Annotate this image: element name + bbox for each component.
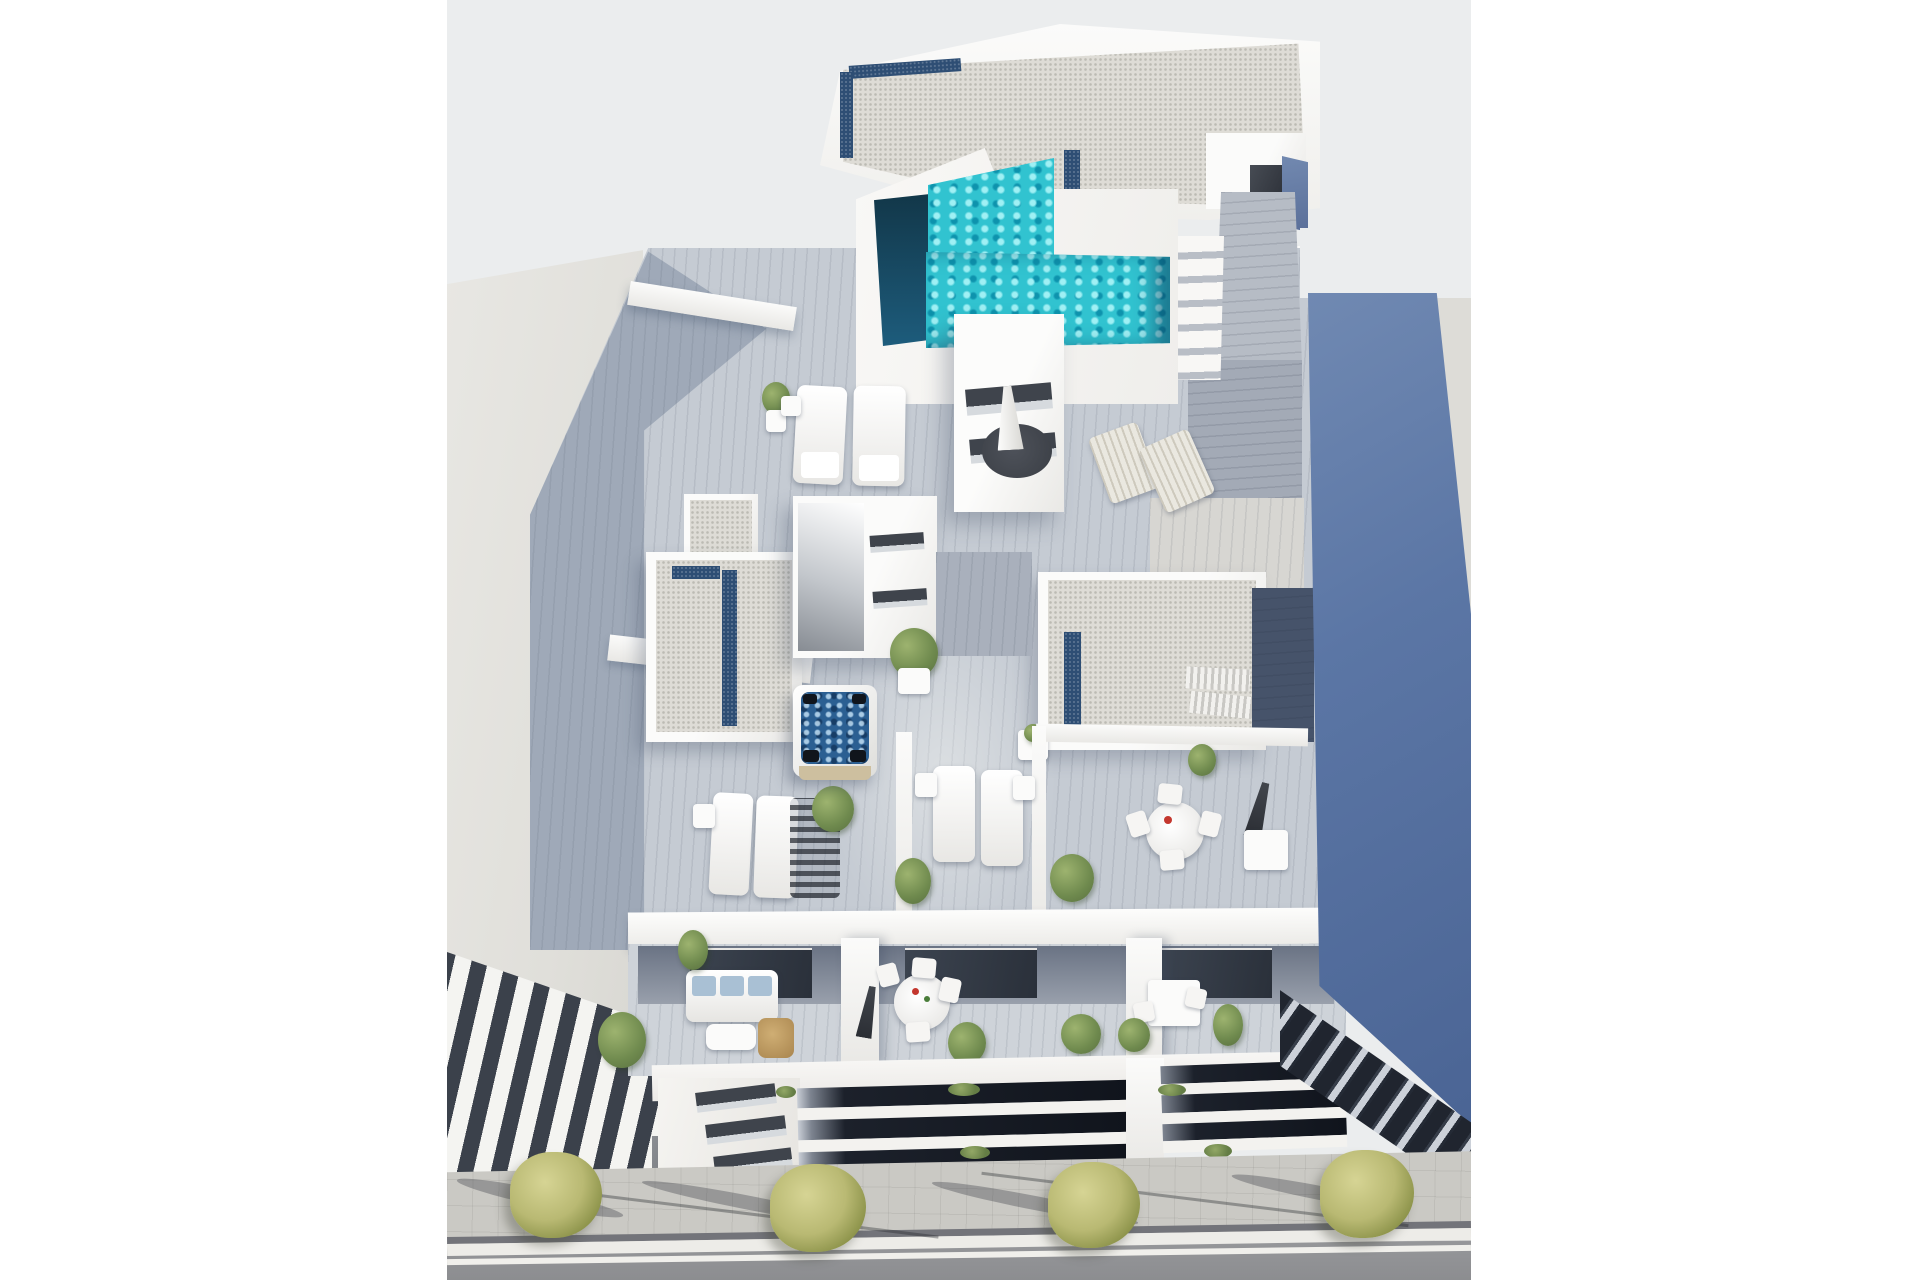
stair-core-mirror-face <box>798 503 864 651</box>
right-skylight-strip <box>1064 632 1081 730</box>
left-skylight-strip-1 <box>672 566 720 579</box>
backdrop-patch-right <box>1300 228 1475 298</box>
terrace-plant-2 <box>895 858 931 904</box>
sofa-cushion-3 <box>748 976 772 996</box>
architectural-render-scene <box>0 0 1920 1280</box>
sun-lounger-2-cushion <box>859 455 899 481</box>
page-margin-left <box>0 0 447 1280</box>
dining-chair-8 <box>905 1021 930 1043</box>
balcony-plant-5 <box>1118 1018 1150 1052</box>
facade-shrub-5 <box>1204 1144 1232 1158</box>
sofa-cushion-2 <box>720 976 744 996</box>
sofa-cushion-1 <box>692 976 716 996</box>
facade-shrub-3 <box>776 1086 796 1098</box>
square-table-chair-2 <box>1184 986 1208 1010</box>
roof-louver-panel-1 <box>1185 666 1250 691</box>
terrace-plant-1 <box>812 786 854 832</box>
balcony-plant-4 <box>1061 1014 1101 1054</box>
side-table-1 <box>781 396 801 416</box>
left-skylight-strip-2 <box>722 570 737 726</box>
table-decor-red <box>1164 816 1172 824</box>
terrace-plant-4 <box>1188 744 1216 776</box>
side-table-4 <box>915 773 937 797</box>
balcony-plant-2 <box>678 930 708 970</box>
sun-lounger-3 <box>708 792 753 896</box>
jacuzzi-wood-skirt <box>799 766 871 780</box>
page-margin-right <box>1471 0 1920 1280</box>
sun-lounger-1-cushion <box>801 452 839 478</box>
facade-shrub-1 <box>948 1083 980 1096</box>
terrace-plant-3 <box>1050 854 1094 902</box>
upper-walkway <box>1214 192 1302 364</box>
wicker-chair <box>758 1018 794 1058</box>
table2-decor-red <box>912 988 919 995</box>
skylight-strip-top-vertical <box>840 72 853 158</box>
jacuzzi-corner-pad-4 <box>850 750 866 762</box>
jacuzzi-corner-pad-1 <box>803 694 817 704</box>
left-gravel-roof-upper <box>690 500 752 552</box>
hallway-deck <box>936 552 1032 656</box>
dining-chair-4 <box>1159 849 1185 871</box>
facade-shrub-4 <box>1158 1084 1186 1096</box>
table2-decor-green <box>924 996 930 1002</box>
balcony-plant-1 <box>598 1012 646 1068</box>
jacuzzi-corner-pad-3 <box>803 750 819 762</box>
dining-chair-6 <box>911 957 937 979</box>
side-table-3 <box>693 804 715 828</box>
jacuzzi-corner-pad-2 <box>852 694 866 704</box>
balcony-plant-6 <box>1213 1004 1243 1046</box>
side-table-5 <box>1013 776 1035 800</box>
side-table-6 <box>1244 830 1288 870</box>
facade-right-pier <box>1126 1058 1164 1170</box>
dining-chair-2 <box>1157 783 1183 805</box>
sun-lounger-5 <box>933 766 975 862</box>
balcony-parapet-band <box>628 907 1346 948</box>
pool-dark-edge <box>874 194 930 346</box>
coffee-table <box>706 1024 756 1050</box>
shaded-passage <box>1252 588 1314 742</box>
planter-pot-2 <box>898 668 930 694</box>
facade-shrub-2 <box>960 1146 990 1159</box>
